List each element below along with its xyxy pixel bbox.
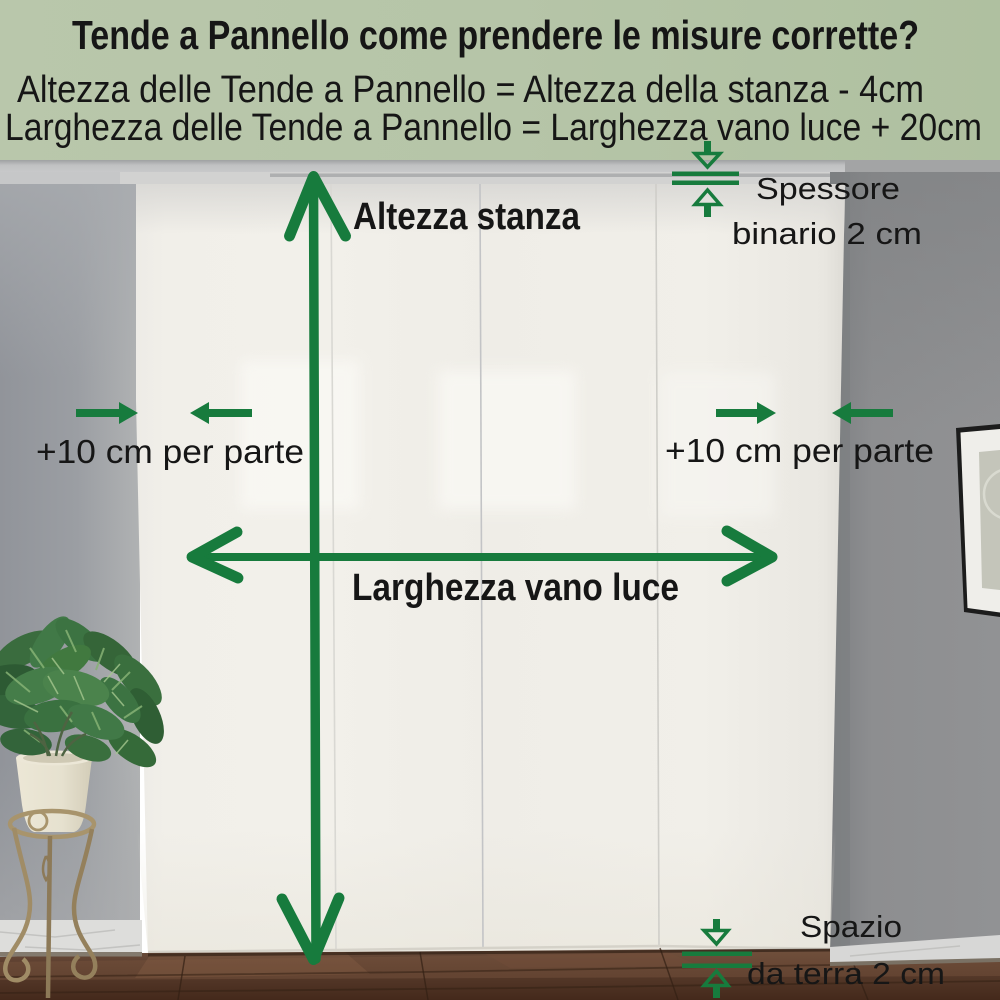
svg-text:Spessore: Spessore <box>756 171 900 206</box>
svg-text:Altezza delle Tende a Pannello: Altezza delle Tende a Pannello = Altezza… <box>17 69 924 111</box>
svg-text:+10 cm per parte: +10 cm per parte <box>36 433 304 470</box>
svg-text:Altezza stanza: Altezza stanza <box>353 196 581 238</box>
svg-text:+10 cm per parte: +10 cm per parte <box>665 432 934 469</box>
svg-text:Larghezza vano luce: Larghezza vano luce <box>352 567 679 609</box>
svg-text:Tende a Pannello come prendere: Tende a Pannello come prendere le misure… <box>72 12 919 58</box>
svg-text:Spazio: Spazio <box>800 909 902 944</box>
svg-text:da terra 2 cm: da terra 2 cm <box>747 956 945 991</box>
svg-text:binario 2 cm: binario 2 cm <box>732 216 922 251</box>
svg-text:Larghezza delle Tende a Pannel: Larghezza delle Tende a Pannello = Largh… <box>5 107 982 149</box>
